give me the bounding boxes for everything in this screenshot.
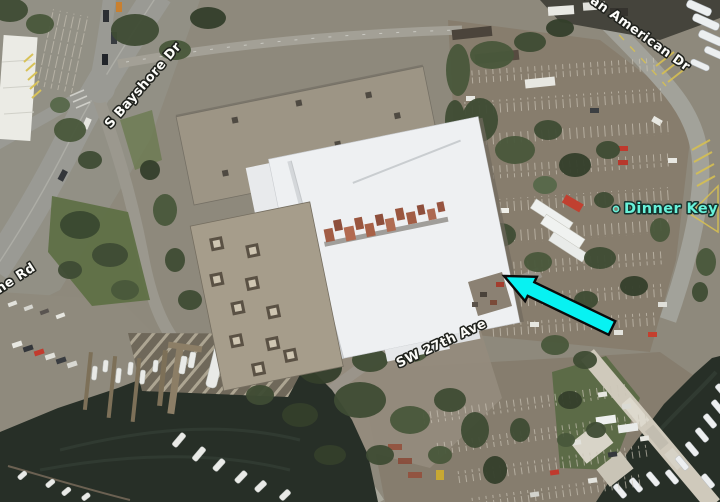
- satellite-map-view: S Bayshore Dr Pan American Dr ane Rd SW …: [0, 0, 720, 502]
- poi-label-dinner-key: Dinner Key: [624, 201, 718, 217]
- poi-dinner-key[interactable]: Dinner Key: [612, 201, 718, 217]
- map-canvas[interactable]: S Bayshore Dr Pan American Dr ane Rd SW …: [0, 0, 720, 502]
